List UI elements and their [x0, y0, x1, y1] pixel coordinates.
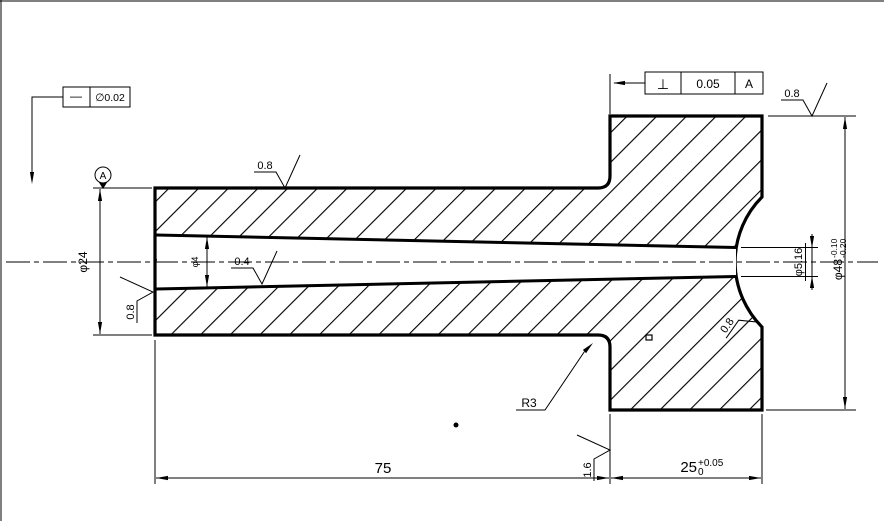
head-diameter-value: φ48: [831, 259, 845, 280]
shaft-length-value: 75: [375, 460, 392, 477]
head-length-value: 25: [680, 459, 697, 476]
roughness-step-face-value: 1.6: [582, 462, 594, 477]
head-length-lower-tol: 0: [698, 467, 704, 478]
straightness-tolerance: ∅0.02: [95, 92, 125, 104]
roughness-step-face: 1.6: [577, 435, 610, 481]
fillet-value: R3: [521, 396, 537, 410]
datum-label: A: [100, 171, 107, 182]
roughness-bore-value: 0.4: [234, 256, 249, 268]
perpendicularity-datum: A: [745, 77, 753, 91]
stray-dot: [454, 423, 459, 428]
frame-perpendicularity: ⊥ 0.05 A: [610, 72, 763, 114]
bore-large-end-value: φ5.16: [793, 248, 805, 277]
head-diameter-lower-tol: -0.20: [838, 238, 848, 258]
drawing-sheet: φ24 A — ∅0.02 ⊥ 0.05 A φ48 -0.10: [0, 0, 884, 521]
frame-straightness: — ∅0.02: [30, 87, 130, 184]
bore-small-end-value: φ4: [190, 257, 200, 268]
leader-fillet-r3: R3: [516, 343, 593, 410]
roughness-head-top-value: 0.8: [784, 88, 799, 100]
roughness-head-top: 0.8: [781, 83, 827, 116]
straightness-icon: —: [70, 89, 82, 103]
dim-head-diameter: φ48 -0.10 -0.20: [766, 116, 856, 410]
roughness-shaft-top-value: 0.8: [257, 160, 272, 172]
dim-head-length: 25 +0.05 0: [611, 458, 761, 480]
shaft-diameter-value: φ24: [76, 251, 90, 272]
engineering-drawing: φ24 A — ∅0.02 ⊥ 0.05 A φ48 -0.10: [0, 0, 884, 521]
datum-a: A: [95, 167, 111, 189]
roughness-bore-left-value: 0.8: [125, 304, 137, 319]
roughness-bore-left: 0.8: [120, 277, 153, 323]
perpendicularity-tolerance: 0.05: [696, 77, 720, 91]
perpendicularity-icon: ⊥: [657, 76, 669, 92]
roughness-shaft-top: 0.8: [254, 155, 300, 188]
